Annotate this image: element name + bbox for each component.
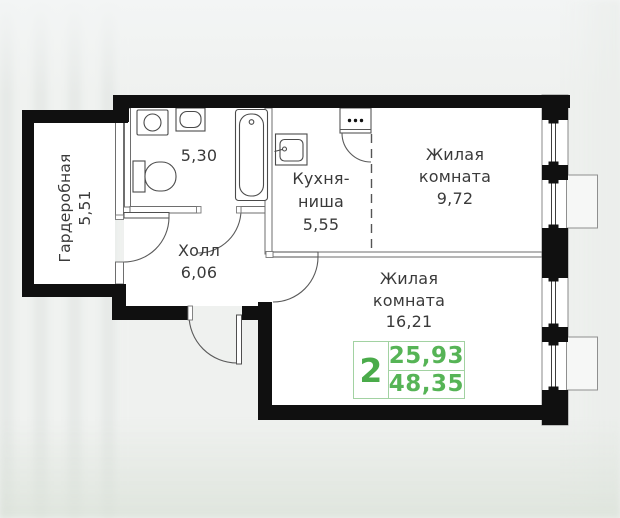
wall-living2-left: [258, 302, 272, 420]
room-label-hall: Холл 6,06: [178, 240, 220, 283]
living2-name-line2: комната: [373, 290, 445, 312]
balcony-outline-bottom: [567, 337, 598, 390]
entrance-door-arc: [189, 315, 237, 363]
balcony-outline-top: [567, 175, 598, 228]
wardrobe-right-wall: [116, 123, 124, 219]
wall-bottom: [258, 405, 560, 420]
bathtub-icon: [236, 110, 268, 201]
area-badge: 2 25,93 48,35: [353, 341, 465, 399]
wash-basin-icon: [176, 105, 205, 131]
kitchen-area: 5,55: [292, 213, 349, 236]
living-area-value: 25,93: [389, 342, 464, 371]
kitchen-name-line2: ниша: [292, 190, 349, 213]
living1-area: 9,72: [419, 188, 491, 210]
rooms-count: 2: [354, 342, 389, 398]
area-values: 25,93 48,35: [389, 342, 464, 398]
rooms-divider-wall: [318, 252, 542, 257]
kitchen-sink-icon: [275, 134, 308, 165]
wall-wardrobe-left: [22, 110, 34, 297]
living1-name-line1: Жилая: [419, 144, 491, 166]
total-area-value: 48,35: [389, 371, 464, 399]
wardrobe-door-leaf: [124, 213, 169, 219]
bathroom-area: 5,30: [181, 145, 217, 167]
hall-area: 6,06: [178, 262, 220, 284]
wall-wardrobe-top: [22, 110, 128, 123]
living2-name-line1: Жилая: [373, 268, 445, 290]
living2-area: 16,21: [373, 311, 445, 333]
hall-name: Холл: [178, 240, 220, 262]
washing-machine-icon: [137, 110, 168, 135]
floor-plan: Гардеробная 5,51 5,30 Холл 6,06 Кухня- н…: [0, 0, 620, 518]
wall-pier-1: [542, 95, 568, 120]
wall-hall-bottom: [124, 306, 189, 320]
toilet-icon: [133, 161, 176, 192]
wall-pier-4: [542, 327, 568, 342]
room-label-wardrobe: Гардеробная 5,51: [55, 128, 95, 288]
room-label-bathroom: 5,30: [181, 145, 217, 167]
electrical-panel-icon: [340, 108, 371, 133]
wardrobe-area: 5,51: [75, 128, 95, 288]
room-label-living2: Жилая комната 16,21: [373, 268, 445, 333]
living2-door-leaf: [273, 252, 318, 257]
room-label-kitchen: Кухня- ниша 5,55: [292, 167, 349, 236]
wall-pier-3: [542, 228, 568, 278]
room-label-living1: Жилая комната 9,72: [419, 144, 491, 210]
wall-step-block: [112, 284, 126, 320]
wardrobe-right-wall-lower: [116, 262, 124, 284]
kitchen-name-line1: Кухня-: [292, 167, 349, 190]
living1-name-line2: комната: [419, 166, 491, 188]
balcony-outlines: [567, 175, 598, 390]
wall-bottom-right-corner: [542, 390, 568, 425]
wall-top: [115, 95, 570, 108]
entrance-door-leaf: [237, 315, 242, 364]
wall-pier-2: [542, 165, 568, 180]
wardrobe-name: Гардеробная: [55, 128, 75, 288]
